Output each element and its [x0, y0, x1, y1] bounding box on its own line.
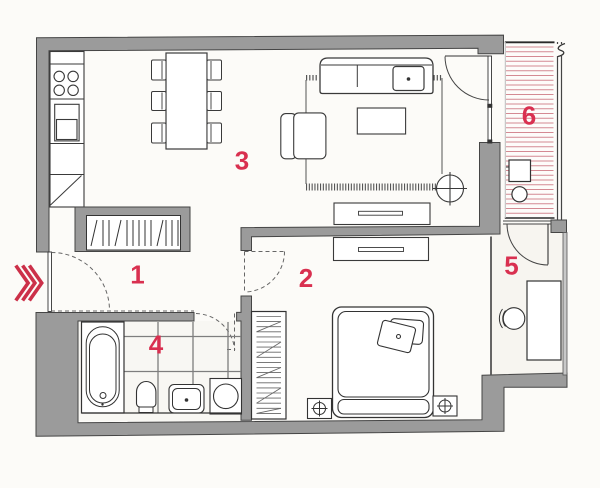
svg-text:4: 4 — [149, 330, 164, 360]
svg-text:6: 6 — [522, 101, 536, 131]
svg-text:2: 2 — [299, 263, 313, 293]
svg-text:5: 5 — [504, 251, 518, 281]
svg-text:3: 3 — [235, 146, 249, 176]
svg-text:1: 1 — [130, 260, 144, 290]
